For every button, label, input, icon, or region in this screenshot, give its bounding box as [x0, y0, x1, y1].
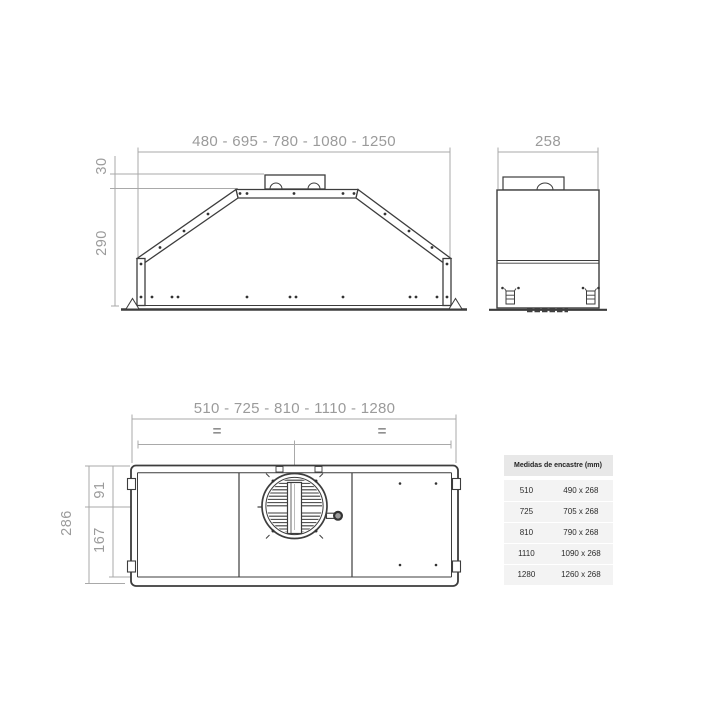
- table-cell-size: 1090 x 268: [549, 549, 612, 558]
- table-cell-width: 1280: [504, 570, 550, 579]
- fan-offset-top-dimension: 91: [92, 475, 108, 505]
- hood-right-post: [443, 259, 451, 306]
- damper-handle-knob: [334, 512, 342, 520]
- equal-spacing-mark-left: =: [207, 424, 227, 440]
- front-view-screws: [140, 192, 449, 298]
- hood-left-post: [137, 259, 145, 306]
- table-cell-size: 790 x 268: [549, 528, 612, 537]
- table-cell-size: 1260 x 268: [549, 570, 612, 579]
- left-mounting-bracket: [505, 289, 517, 305]
- side-view-drawing: [489, 177, 607, 310]
- hood-height-dimension: 290: [94, 221, 110, 265]
- table-row: 1280 1260 x 268: [504, 564, 613, 585]
- front-view-drawing: [121, 175, 467, 310]
- hood-top-band: [236, 190, 358, 199]
- table-cell-width: 510: [504, 486, 550, 495]
- side-body: [497, 190, 599, 308]
- table-row: 810 790 x 268: [504, 522, 613, 543]
- exhaust-duct: [265, 175, 325, 189]
- right-mounting-bracket: [585, 289, 597, 305]
- table-cell-width: 810: [504, 528, 550, 537]
- table-row: 510 490 x 268: [504, 480, 613, 501]
- bottom-height-dimension: 286: [59, 501, 75, 545]
- table-row: 1110 1090 x 268: [504, 543, 613, 564]
- table-row: 725 705 x 268: [504, 501, 613, 522]
- technical-drawing-canvas: 480 - 695 - 780 - 1080 - 1250 30 290 258…: [0, 0, 720, 720]
- table-cell-width: 1110: [504, 549, 550, 558]
- bottom-view-drawing: [128, 466, 461, 587]
- bottom-width-dimension: 510 - 725 - 810 - 1110 - 1280: [138, 400, 451, 418]
- hood-dimension-diagram: [0, 0, 720, 720]
- duct-height-dimension: 30: [94, 151, 110, 181]
- fan-offset-bottom-dimension: 167: [92, 520, 108, 560]
- encastre-table: Medidas de encastre (mm) 510 490 x 268 7…: [504, 455, 613, 585]
- equal-spacing-mark-right: =: [372, 424, 392, 440]
- table-header: Medidas de encastre (mm): [504, 455, 613, 476]
- hood-left-slope: [137, 190, 238, 263]
- front-width-dimension: 480 - 695 - 780 - 1080 - 1250: [138, 133, 450, 151]
- side-depth-dimension: 258: [498, 133, 598, 151]
- side-duct: [503, 177, 564, 190]
- table-cell-width: 725: [504, 507, 550, 516]
- table-cell-size: 705 x 268: [549, 507, 612, 516]
- table-cell-size: 490 x 268: [549, 486, 612, 495]
- hood-right-slope: [356, 190, 451, 263]
- table-body: 510 490 x 268 725 705 x 268 810 790 x 26…: [504, 480, 613, 585]
